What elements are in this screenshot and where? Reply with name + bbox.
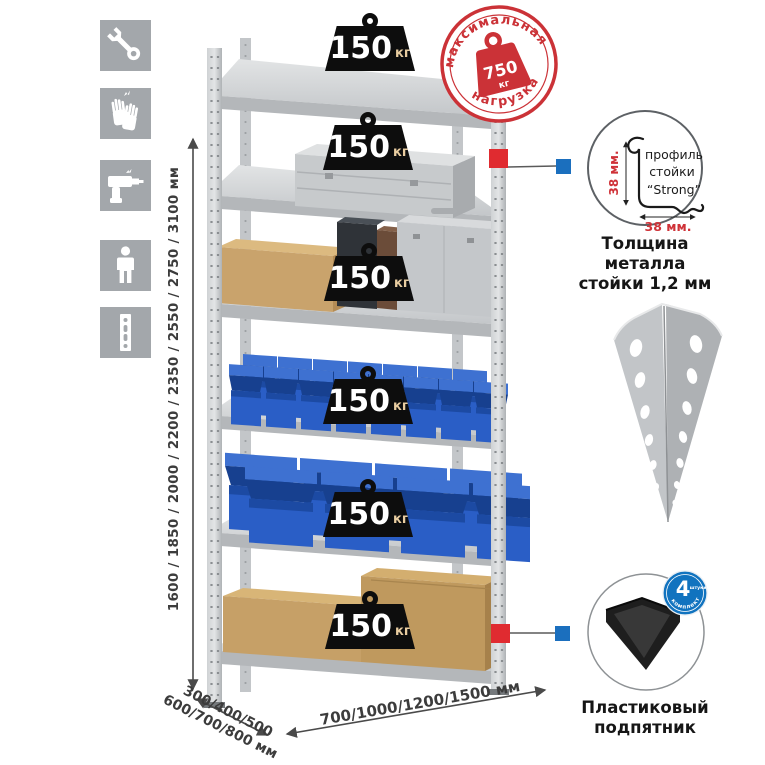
- badge-value: 4: [676, 577, 691, 601]
- shelf-load-weight: 150 кг: [325, 591, 415, 649]
- foot-marker-red: [491, 624, 510, 643]
- product-infographic: 150 кг 150 кг 150 кг 150 кг 150 кг: [0, 0, 765, 765]
- badge-unit: штуки: [690, 586, 707, 591]
- shelf-load-weight: 150 кг: [324, 243, 414, 301]
- height-options-label: 1600 / 1850 / 2000 / 2200 / 2350 / 2550 …: [166, 109, 182, 669]
- profile-marker-red: [489, 149, 508, 168]
- shelf-load-weight: 150 кг: [325, 13, 415, 71]
- weight-icon: 150 кг: [323, 492, 413, 537]
- weight-icon: 150 кг: [325, 26, 415, 71]
- weight-icon: 150 кг: [324, 256, 414, 301]
- shelf-load-weight: 150 кг: [323, 112, 413, 170]
- shelf-load-unit: кг: [395, 46, 411, 61]
- foot-marker-blue: [555, 626, 570, 641]
- shelf-load-weight: 150 кг: [323, 479, 413, 537]
- weight-icon: 150 кг: [323, 379, 413, 424]
- shelf-load-value: 150: [329, 34, 392, 64]
- kit-quantity-badge: 4 штуки в комплекте: [662, 570, 708, 616]
- profile-marker-blue: [556, 159, 571, 174]
- profile-callout-line: [508, 166, 556, 167]
- weight-icon: 150 кг: [323, 125, 413, 170]
- weight-icon: 150 кг: [325, 604, 415, 649]
- shelf-load-weight: 150 кг: [323, 366, 413, 424]
